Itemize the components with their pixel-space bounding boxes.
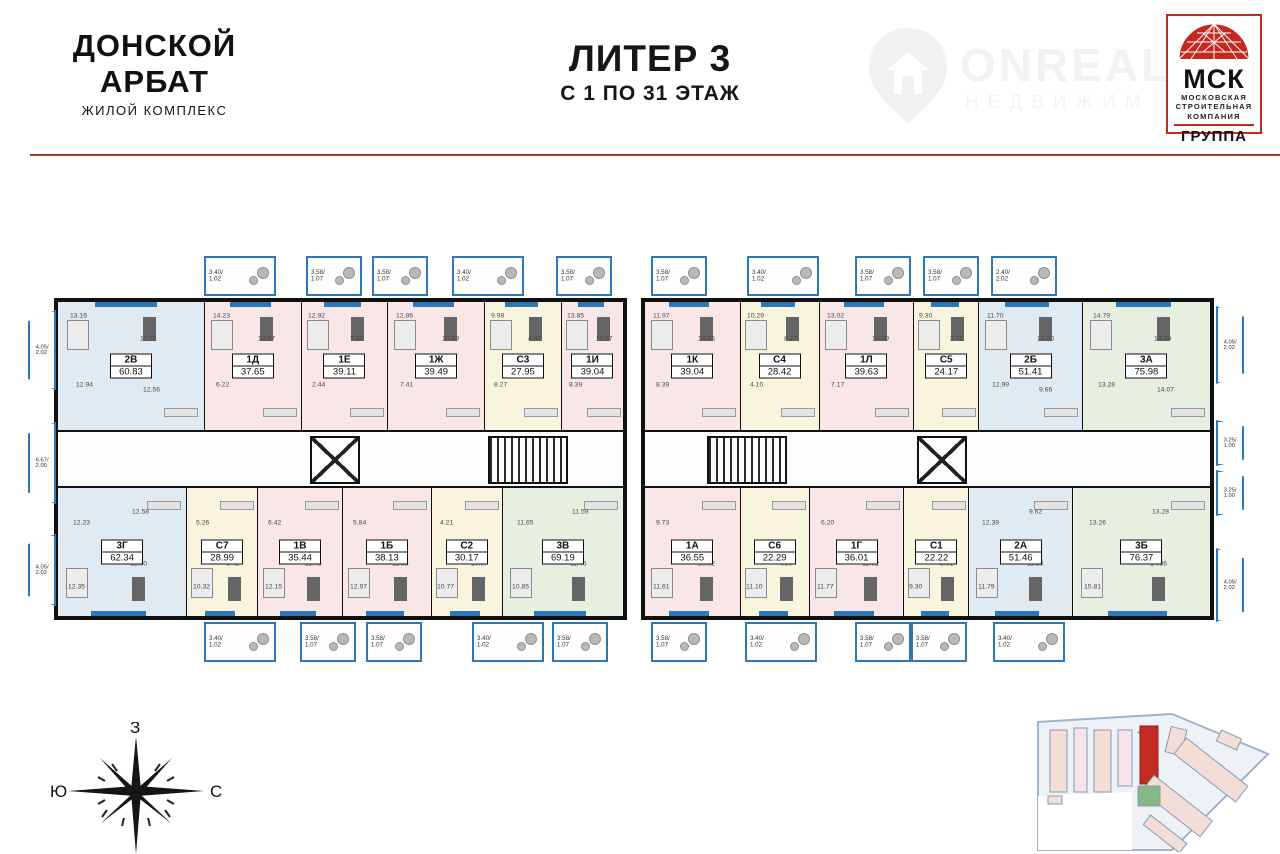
room-area-value: 9.66 [1039, 386, 1052, 393]
balcony: 3.40/1.02 [204, 256, 276, 296]
dot [688, 633, 700, 645]
balcony: 3.40/1.02 [204, 622, 276, 662]
kitchen-counter-icon [220, 501, 254, 510]
unit-code: С7 [202, 541, 242, 553]
unit-2Б[interactable]: 2Б51.4111.7013.3012.999.66 [978, 302, 1082, 430]
unit-area: 75.98 [1126, 367, 1166, 378]
wing-right: 1К39.0411.9713.858.39С428.4210.298.274.1… [641, 298, 1214, 620]
unit-1Б[interactable]: 1Б38.1312.9711.655.84 [342, 488, 431, 616]
unit-area: 39.04 [672, 367, 712, 378]
table-icon [307, 577, 320, 601]
dot [800, 267, 812, 279]
dot [884, 276, 893, 285]
unit-area: 35.44 [280, 553, 320, 564]
balcony-area-label: 4.05/2.02 [1224, 339, 1237, 351]
room-area-value: 6.20 [821, 519, 834, 526]
balcony-area-label: 4.05/2.02 [1224, 579, 1237, 591]
unit-label-С6: С622.29 [754, 540, 796, 565]
dot [497, 276, 506, 285]
room-area-value: 11.65 [517, 519, 534, 526]
room-area-value: 14.79 [1093, 312, 1110, 319]
balcony-furniture-icon [517, 631, 539, 653]
balcony: 4.05/2.02 [28, 534, 56, 606]
header-divider [30, 154, 1280, 156]
unit-2В[interactable]: 2В60.8313.1611.5512.9412.56 [58, 302, 204, 430]
elevator-shaft [310, 436, 360, 484]
unit-1К[interactable]: 1К39.0411.9713.858.39 [645, 302, 740, 430]
kitchen-counter-icon [465, 501, 499, 510]
room-area-value: 12.15 [265, 583, 282, 590]
bed-icon [67, 320, 89, 350]
bed-icon [211, 320, 233, 350]
room-area-value: 10.77 [437, 583, 454, 590]
balcony-area-label: 4.05/2.02 [36, 564, 49, 576]
room-area-value: 8.39 [656, 381, 669, 388]
unit-1А[interactable]: 1А36.5511.6110.929.73 [645, 488, 740, 616]
unit-area: 24.17 [926, 367, 966, 378]
room-area-value: 7.41 [400, 381, 413, 388]
kitchen-counter-icon [772, 501, 806, 510]
balcony-area-label: 3.40/1.02 [209, 636, 223, 648]
unit-3В[interactable]: 3В69.1910.8511.4611.6511.59 [502, 488, 623, 616]
balcony-furniture-icon [940, 631, 962, 653]
unit-label-С4: С428.42 [759, 354, 801, 379]
title-sub: С 1 ПО 31 ЭТАЖ [495, 82, 805, 106]
unit-area: 22.29 [755, 553, 795, 564]
room-area-value: 13.85 [567, 312, 584, 319]
dot [257, 633, 269, 645]
unit-area: 36.01 [837, 553, 877, 564]
kitchen-counter-icon [702, 408, 736, 417]
balcony: 3.58/1.07 [306, 256, 362, 296]
balcony-furniture-icon [884, 265, 906, 287]
unit-code: 3В [543, 541, 583, 553]
room-area-value: 13.28 [1098, 381, 1115, 388]
window-strip-icon [366, 611, 404, 616]
room-area-value: 11.97 [653, 312, 670, 319]
balcony-area-label: 3.40/1.02 [752, 270, 766, 282]
kitchen-counter-icon [932, 501, 966, 510]
unit-area: 39.49 [416, 367, 456, 378]
room-area-value: 12.58 [132, 508, 149, 515]
unit-label-С1: С122.22 [915, 540, 957, 565]
unit-code: 1К [672, 355, 712, 367]
unit-code: С6 [755, 541, 795, 553]
bed-icon [490, 320, 512, 350]
window-strip-icon [95, 302, 157, 307]
balcony: 3.40/1.02 [745, 622, 817, 662]
unit-area: 51.46 [1001, 553, 1041, 564]
unit-code: 1И [572, 355, 612, 367]
balcony: 3.58/1.07 [366, 622, 422, 662]
window-strip-icon [761, 302, 795, 307]
msk-group: ГРУППА [1174, 124, 1254, 145]
balcony: 3.40/1.02 [993, 622, 1065, 662]
room-area-value: 8.27 [784, 335, 797, 342]
dot [517, 642, 526, 651]
kitchen-counter-icon [164, 408, 198, 417]
balcony: 3.58/1.07 [552, 622, 608, 662]
unit-label-С2: С230.17 [446, 540, 488, 565]
units-row-top: 2В60.8313.1611.5512.9412.561Д37.6514.231… [58, 302, 623, 430]
room-area-value: 12.86 [396, 312, 413, 319]
balcony-furniture-icon [680, 265, 702, 287]
unit-code: С5 [926, 355, 966, 367]
unit-code: С4 [760, 355, 800, 367]
window-strip-icon [91, 611, 146, 616]
room-area-value: 7.40 [350, 335, 363, 342]
dot [1038, 267, 1050, 279]
balcony-area-label: 3.40/1.02 [477, 636, 491, 648]
table-icon [132, 577, 145, 601]
room-area-value: 11.97 [596, 335, 613, 342]
room-area-value: 2.44 [312, 381, 325, 388]
balcony-furniture-icon [401, 265, 423, 287]
unit-area: 39.63 [846, 367, 886, 378]
unit-area: 28.99 [202, 553, 242, 564]
room-area-value: 13.02 [827, 312, 844, 319]
unit-label-С3: С327.95 [502, 354, 544, 379]
unit-1Л[interactable]: 1Л39.6313.0210.897.17 [819, 302, 914, 430]
unit-1И[interactable]: 1И39.0413.8511.978.39 [561, 302, 623, 430]
room-area-value: 4.21 [440, 519, 453, 526]
balcony-area-label: 2.40/2.02 [996, 270, 1010, 282]
unit-1Д[interactable]: 1Д37.6514.2312.076.22 [204, 302, 301, 430]
unit-1Е[interactable]: 1Е39.1112.927.402.44 [301, 302, 388, 430]
window-strip-icon [844, 302, 884, 307]
page: ДОНСКОЙ АРБАТ ЖИЛОЙ КОМПЛЕКС ЛИТЕР 3 С 1… [0, 0, 1280, 854]
unit-3Б[interactable]: 3Б76.3715.8114.3613.2613.28 [1072, 488, 1210, 616]
corridor [645, 430, 1210, 488]
balcony: 3.58/1.07 [556, 256, 612, 296]
dot [884, 642, 893, 651]
page-title: ЛИТЕР 3 С 1 ПО 31 ЭТАЖ [495, 38, 805, 106]
bed-icon [745, 320, 767, 350]
dot [329, 642, 338, 651]
window-strip-icon [995, 611, 1039, 616]
kitchen-counter-icon [446, 408, 480, 417]
balcony-area-label: 3.40/1.02 [457, 270, 471, 282]
window-strip-icon [669, 302, 709, 307]
unit-code: 3Г [102, 541, 142, 553]
unit-label-2Б: 2Б51.41 [1010, 354, 1052, 379]
kitchen-counter-icon [866, 501, 900, 510]
unit-area: 62.34 [102, 553, 142, 564]
dot [790, 642, 799, 651]
unit-С6[interactable]: С622.2911.104.50 [740, 488, 809, 616]
window-strip-icon [413, 302, 454, 307]
window-strip-icon [505, 302, 538, 307]
room-area-value: 6.22 [216, 381, 229, 388]
window-strip-icon [230, 302, 271, 307]
msk-line3: КОМПАНИЯ [1168, 112, 1260, 121]
wing-left: 2В60.8313.1611.5512.9412.561Д37.6514.231… [54, 298, 627, 620]
unit-3Г[interactable]: 3Г62.3412.3512.8012.2312.58 [58, 488, 186, 616]
balcony-furniture-icon [952, 265, 974, 287]
kitchen-counter-icon [875, 408, 909, 417]
room-area-value: 12.92 [308, 312, 325, 319]
unit-code: 1Г [837, 541, 877, 553]
room-area-value: 3.75 [950, 335, 963, 342]
balcony-area-label: 3.58/1.07 [561, 270, 575, 282]
elevator-shaft [917, 436, 967, 484]
table-icon [700, 577, 713, 601]
window-strip-icon [834, 611, 874, 616]
dot [892, 633, 904, 645]
balcony-area-label: 3.40/1.02 [998, 636, 1012, 648]
balcony-furniture-icon [395, 631, 417, 653]
balcony: 3.58/1.07 [855, 256, 911, 296]
window-strip-icon [324, 302, 361, 307]
balcony: 6.67/2.00 [28, 422, 56, 504]
unit-С4[interactable]: С428.4210.298.274.10 [740, 302, 819, 430]
balcony-furniture-icon [680, 631, 702, 653]
msk-line1: МОСКОВСКАЯ [1168, 93, 1260, 102]
unit-area: 22.22 [916, 553, 956, 564]
room-area-value: 12.99 [992, 381, 1009, 388]
room-area-value: 13.28 [1152, 508, 1169, 515]
floorplan: 2В60.8313.1611.5512.9412.561Д37.6514.231… [28, 252, 1250, 666]
room-area-value: 13.85 [698, 335, 715, 342]
unit-label-1Б: 1Б38.13 [366, 540, 408, 565]
room-area-value: 9.98 [491, 312, 504, 319]
balcony-area-label: 3.25/1.00 [1224, 437, 1237, 449]
unit-1Г[interactable]: 1Г36.0111.7712.926.20 [809, 488, 904, 616]
balcony-area-label: 3.58/1.07 [860, 270, 874, 282]
table-icon [941, 577, 954, 601]
balcony-area-label: 3.40/1.02 [209, 270, 223, 282]
bed-icon [307, 320, 329, 350]
dot [337, 633, 349, 645]
unit-label-1Е: 1Е39.11 [323, 354, 365, 379]
unit-area: 60.83 [111, 367, 151, 378]
unit-area: 27.95 [503, 367, 543, 378]
unit-code: 2А [1001, 541, 1041, 553]
unit-label-3Г: 3Г62.34 [101, 540, 143, 565]
dot [401, 276, 410, 285]
unit-С1[interactable]: С122.229.303.91 [903, 488, 968, 616]
room-area-value: 10.89 [872, 335, 889, 342]
balcony-area-label: 3.58/1.07 [377, 270, 391, 282]
kitchen-counter-icon [702, 501, 736, 510]
dot [249, 642, 258, 651]
window-strip-icon [205, 611, 235, 616]
unit-code: 1Е [324, 355, 364, 367]
balcony: 3.58/1.07 [855, 622, 911, 662]
unit-2А[interactable]: 2А51.4611.7911.3612.399.62 [968, 488, 1072, 616]
room-area-value: 7.17 [831, 381, 844, 388]
room-area-value: 12.35 [68, 583, 85, 590]
units-row-bottom: 1А36.5511.6110.929.73С622.2911.104.501Г3… [645, 488, 1210, 616]
bed-icon [1090, 320, 1112, 350]
unit-label-1Д: 1Д37.65 [232, 354, 274, 379]
title-main: ЛИТЕР 3 [495, 38, 805, 80]
dot [581, 642, 590, 651]
unit-label-1Л: 1Л39.63 [845, 354, 887, 379]
unit-label-С5: С524.17 [925, 354, 967, 379]
unit-code: 3Б [1121, 541, 1161, 553]
bed-icon [394, 320, 416, 350]
dot [1030, 276, 1039, 285]
bed-icon [825, 320, 847, 350]
unit-label-1К: 1К39.04 [671, 354, 713, 379]
balcony-furniture-icon [585, 265, 607, 287]
unit-С3[interactable]: С327.959.984.378.27 [484, 302, 561, 430]
kitchen-counter-icon [263, 408, 297, 417]
table-icon [780, 577, 793, 601]
room-area-value: 9.30 [909, 583, 922, 590]
balcony: 4.05/2.02 [28, 310, 56, 390]
dot [892, 267, 904, 279]
dot [680, 276, 689, 285]
room-area-value: 10.89 [442, 335, 459, 342]
kitchen-counter-icon [781, 408, 815, 417]
kitchen-counter-icon [1044, 408, 1078, 417]
bed-icon [985, 320, 1007, 350]
unit-area: 76.37 [1121, 553, 1161, 564]
balcony-furniture-icon [792, 265, 814, 287]
compass-label-north: С [210, 782, 222, 801]
unit-label-1В: 1В35.44 [279, 540, 321, 565]
kitchen-counter-icon [1171, 501, 1205, 510]
table-icon [864, 577, 877, 601]
balcony-furniture-icon [1030, 265, 1052, 287]
brand-logo: ДОНСКОЙ АРБАТ ЖИЛОЙ КОМПЛЕКС [62, 28, 247, 118]
unit-label-С7: С728.99 [201, 540, 243, 565]
unit-С2[interactable]: С230.1710.7710.074.21 [431, 488, 502, 616]
balcony: 3.58/1.07 [923, 256, 979, 296]
corridor [58, 430, 623, 488]
unit-code: 1Д [233, 355, 273, 367]
balcony-area-label: 3.58/1.07 [557, 636, 571, 648]
unit-area: 36.55 [672, 553, 712, 564]
bed-icon [918, 320, 940, 350]
unit-label-2В: 2В60.83 [110, 354, 152, 379]
dot [952, 276, 961, 285]
window-strip-icon [280, 611, 316, 616]
unit-С7[interactable]: С728.9910.326.425.26 [186, 488, 257, 616]
stairwell [488, 436, 568, 484]
msk-abbr: МСК [1168, 66, 1260, 93]
dot [395, 642, 404, 651]
balcony: 3.58/1.07 [372, 256, 428, 296]
room-area-value: 9.73 [656, 519, 669, 526]
balcony-area-label: 3.40/1.02 [750, 636, 764, 648]
kitchen-counter-icon [305, 501, 339, 510]
watermark-text: ONREAL [960, 38, 1172, 92]
balcony-furniture-icon [790, 631, 812, 653]
unit-area: 51.41 [1011, 367, 1051, 378]
room-area-value: 14.30 [1154, 335, 1171, 342]
room-area-value: 11.77 [817, 583, 834, 590]
balcony: 4.05/2.02 [1216, 306, 1244, 384]
unit-code: 3А [1126, 355, 1166, 367]
dot [688, 267, 700, 279]
balcony: 3.40/1.02 [472, 622, 544, 662]
room-area-value: 12.97 [350, 583, 367, 590]
room-area-value: 11.79 [978, 583, 995, 590]
dot [249, 276, 258, 285]
balcony-furniture-icon [329, 631, 351, 653]
dot [403, 633, 415, 645]
window-strip-icon [578, 302, 604, 307]
unit-area: 28.42 [760, 367, 800, 378]
unit-code: С1 [916, 541, 956, 553]
dot [525, 633, 537, 645]
balcony-area-label: 3.58/1.07 [311, 270, 325, 282]
balcony-furniture-icon [249, 265, 271, 287]
kitchen-counter-icon [584, 501, 618, 510]
kitchen-counter-icon [587, 408, 621, 417]
kitchen-counter-icon [350, 408, 384, 417]
window-strip-icon [534, 611, 586, 616]
window-strip-icon [1116, 302, 1171, 307]
balcony: 4.05/2.02 [1216, 548, 1244, 622]
window-strip-icon [1005, 302, 1049, 307]
window-strip-icon [931, 302, 959, 307]
unit-С5[interactable]: С524.179.303.75 [913, 302, 978, 430]
unit-3А[interactable]: 3А75.9814.7914.3013.2814.07 [1082, 302, 1210, 430]
dot [1046, 633, 1058, 645]
balcony: 3.58/1.07 [651, 256, 707, 296]
window-strip-icon [1108, 611, 1167, 616]
dot [589, 633, 601, 645]
unit-area: 39.04 [572, 367, 612, 378]
unit-code: С3 [503, 355, 543, 367]
balcony-area-label: 4.05/2.02 [36, 344, 49, 356]
dot [343, 267, 355, 279]
balcony: 3.58/1.07 [911, 622, 967, 662]
room-area-value: 11.59 [572, 508, 589, 515]
kitchen-counter-icon [524, 408, 558, 417]
room-area-value: 9.62 [1029, 508, 1042, 515]
dot [257, 267, 269, 279]
stairwell [707, 436, 787, 484]
balcony-furniture-icon [1038, 631, 1060, 653]
msk-line2: СТРОИТЕЛЬНАЯ [1168, 102, 1260, 111]
room-area-value: 15.81 [1084, 583, 1101, 590]
msk-dome-icon [1175, 20, 1253, 60]
room-area-value: 11.70 [987, 312, 1004, 319]
siteplan-map [1022, 700, 1274, 852]
unit-code: 2Б [1011, 355, 1051, 367]
balcony-area-label: 3.58/1.07 [916, 636, 930, 648]
balcony: 3.40/1.02 [452, 256, 524, 296]
unit-label-1Ж: 1Ж39.49 [415, 354, 457, 379]
dot [798, 633, 810, 645]
room-area-value: 10.32 [193, 583, 210, 590]
room-area-value: 5.84 [353, 519, 366, 526]
dot [593, 267, 605, 279]
unit-label-3А: 3А75.98 [1125, 354, 1167, 379]
room-area-value: 12.39 [982, 519, 999, 526]
unit-area: 39.11 [324, 367, 364, 378]
balcony-area-label: 3.58/1.07 [928, 270, 942, 282]
unit-label-1И: 1И39.04 [571, 354, 613, 379]
balcony-furniture-icon [581, 631, 603, 653]
balcony: 3.40/1.02 [747, 256, 819, 296]
unit-1Ж[interactable]: 1Ж39.4912.8610.897.41 [387, 302, 484, 430]
unit-1В[interactable]: 1В35.4412.1511.486.42 [257, 488, 342, 616]
room-area-value: 12.23 [73, 519, 90, 526]
room-area-value: 14.07 [1157, 386, 1174, 393]
brand-subtitle: ЖИЛОЙ КОМПЛЕКС [62, 103, 247, 118]
dot [505, 267, 517, 279]
table-icon [1029, 577, 1042, 601]
balcony: 3.58/1.07 [651, 622, 707, 662]
balcony-area-label: 3.58/1.07 [860, 636, 874, 648]
balcony-area-label: 3.58/1.07 [656, 270, 670, 282]
